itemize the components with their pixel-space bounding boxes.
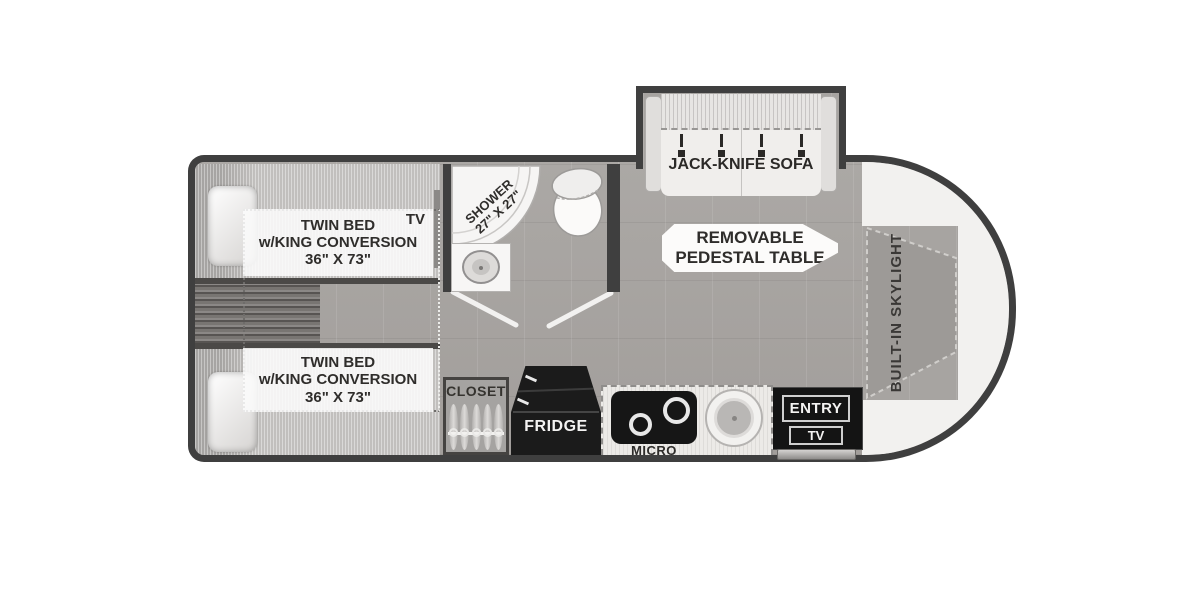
- galley-counter: MICRO: [601, 385, 773, 455]
- jack-knife-sofa: JACK-KNIFE SOFA: [645, 94, 837, 198]
- twin-bed-bottom-label: TWIN BED w/KING CONVERSION 36" X 73": [243, 348, 433, 412]
- bed-top-line3: 36" X 73": [305, 251, 371, 268]
- bed-bottom-line2: w/KING CONVERSION: [259, 371, 417, 388]
- pedestal-table: REMOVABLE PEDESTAL TABLE: [662, 224, 838, 272]
- sink-drain: [479, 266, 483, 270]
- bed-bottom-line1: TWIN BED: [301, 354, 375, 371]
- sofa-armrest-left: [645, 96, 662, 192]
- burner-small: [629, 413, 652, 436]
- bed-top-line2: w/KING CONVERSION: [259, 234, 417, 251]
- seatbelt-icon: [678, 134, 685, 157]
- toilet: [548, 166, 609, 240]
- sofa-armrest-right: [820, 96, 837, 192]
- seatbelt-icon: [718, 134, 725, 157]
- closet-label: CLOSET: [446, 380, 506, 399]
- entry-step: [777, 449, 856, 460]
- bathroom-wall-right: [607, 164, 620, 292]
- entry-tv-label-box: TV: [789, 426, 843, 445]
- seatbelt-icon: [758, 134, 765, 157]
- bath-door-swing-left: [453, 292, 516, 325]
- rv-floorplan: BUILT-IN SKYLIGHT TWIN BED w/KING CONVER…: [0, 0, 1200, 600]
- kitchen-sink-drain: [732, 416, 737, 421]
- fridge-handle: [517, 398, 529, 406]
- fridge-handle: [525, 375, 537, 383]
- bed-bottom-line3: 36" X 73": [305, 389, 371, 406]
- seatbelt-icons: [661, 134, 821, 157]
- cooktop: [611, 391, 697, 444]
- coach-body-outline: BUILT-IN SKYLIGHT TWIN BED w/KING CONVER…: [188, 155, 1016, 462]
- fridge-label: FRIDGE: [511, 418, 601, 436]
- entry-label-box: ENTRY: [782, 395, 850, 422]
- fridge: FRIDGE: [511, 366, 601, 455]
- entry-tv-label: TV: [808, 428, 825, 443]
- closet-hangers: [449, 404, 503, 450]
- micro-label: MICRO: [611, 443, 697, 458]
- twin-bed-top-label: TWIN BED w/KING CONVERSION 36" X 73" TV: [243, 209, 433, 276]
- sofa-backrest: [661, 94, 821, 130]
- bedroom-tv-label: TV: [406, 211, 425, 228]
- sofa-label: JACK-KNIFE SOFA: [661, 156, 821, 174]
- burner-large: [663, 397, 690, 424]
- kitchen-sink: [705, 389, 763, 447]
- seatbelt-icon: [798, 134, 805, 157]
- entry-tv-panel: ENTRY TV: [772, 388, 862, 449]
- bed-top-line1: TWIN BED: [301, 217, 375, 234]
- bath-door-swing-right: [549, 293, 611, 326]
- entry-label: ENTRY: [790, 400, 843, 417]
- closet: CLOSET: [443, 377, 509, 455]
